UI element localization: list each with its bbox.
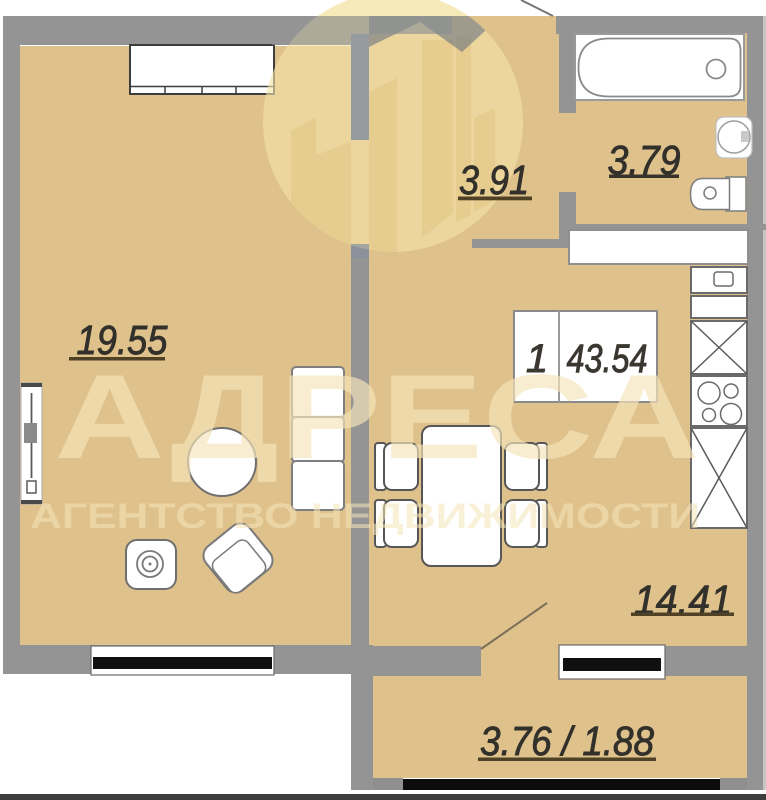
svg-text:14.41: 14.41 xyxy=(634,577,732,623)
svg-text:3.76 / 1.88: 3.76 / 1.88 xyxy=(480,718,654,764)
svg-text:3.91: 3.91 xyxy=(459,157,529,203)
svg-text:19.55: 19.55 xyxy=(77,317,168,363)
svg-text:1: 1 xyxy=(526,337,548,381)
svg-text:АГЕНТСТВО НЕДВИЖИМОСТИ: АГЕНТСТВО НЕДВИЖИМОСТИ xyxy=(30,497,700,536)
svg-text:43.54: 43.54 xyxy=(567,337,648,381)
